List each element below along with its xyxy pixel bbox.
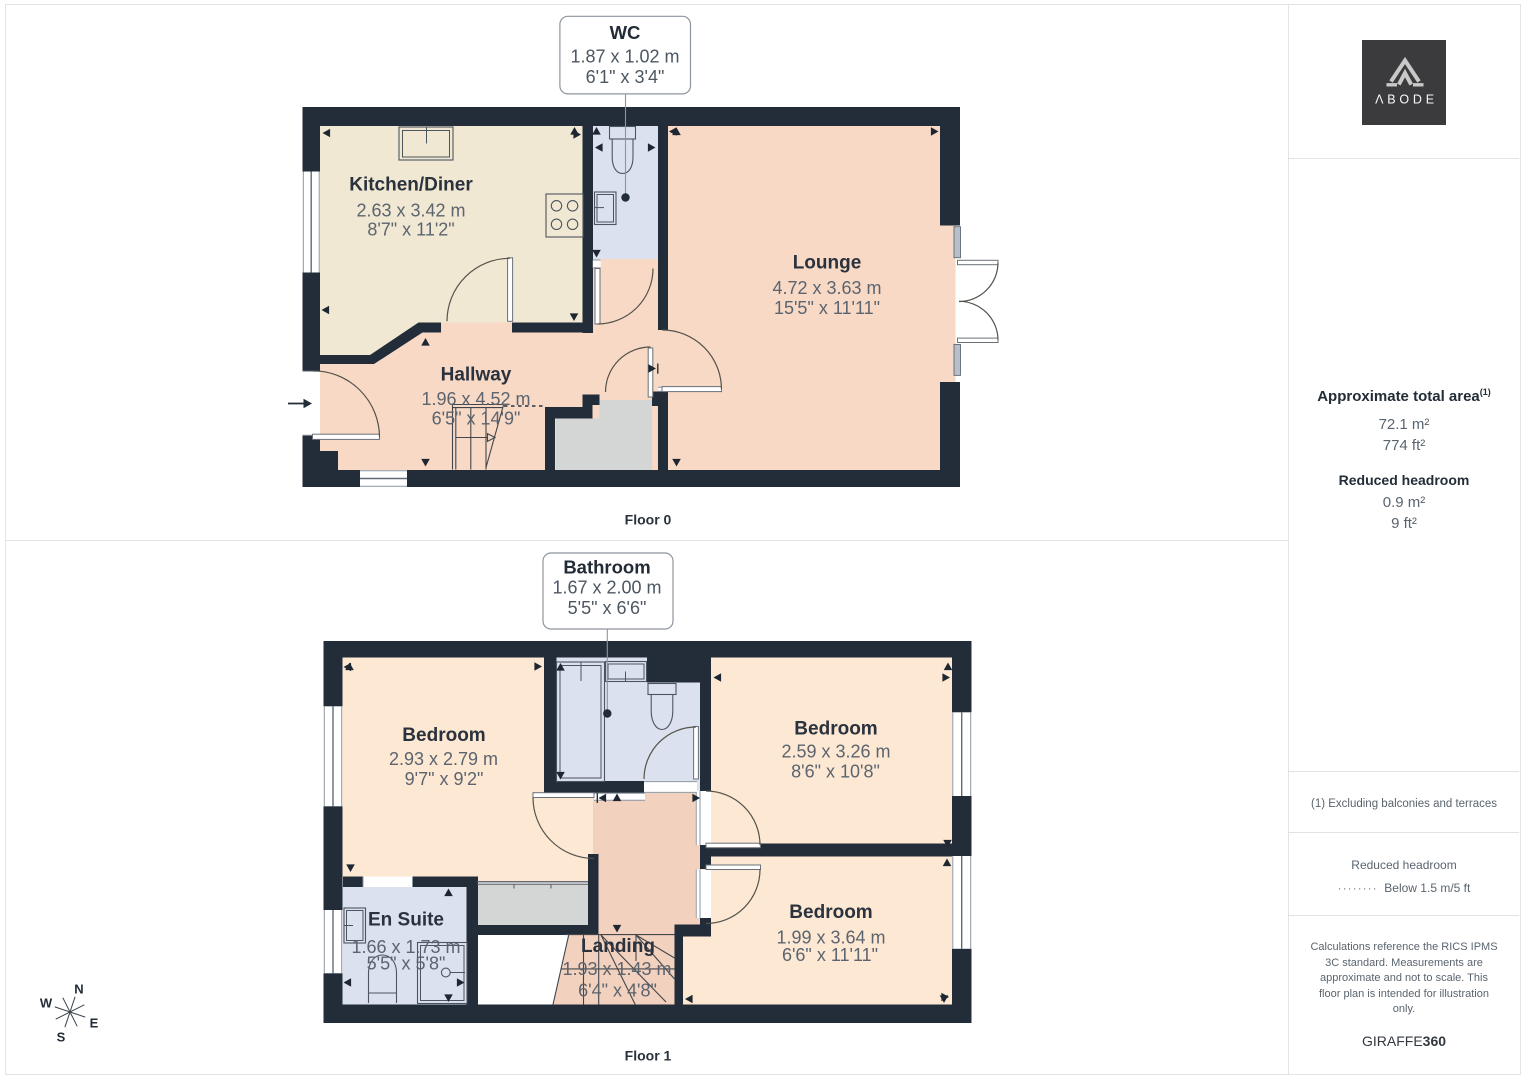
svg-text:1.87 x 1.02 m: 1.87 x 1.02 m (570, 47, 679, 67)
svg-text:Landing: Landing (581, 936, 655, 957)
svg-text:6'4" x 4'8": 6'4" x 4'8" (578, 981, 657, 1001)
svg-text:1.96 x 4.52 m: 1.96 x 4.52 m (421, 389, 530, 409)
svg-text:8'7" x 11'2": 8'7" x 11'2" (367, 220, 454, 240)
svg-text:Hallway: Hallway (441, 365, 512, 386)
svg-text:Kitchen/Diner: Kitchen/Diner (349, 175, 473, 196)
svg-text:5'5" x 6'6": 5'5" x 6'6" (568, 598, 647, 618)
svg-text:Floor 1: Floor 1 (625, 1048, 672, 1064)
svg-text:1.67 x 2.00 m: 1.67 x 2.00 m (552, 578, 661, 598)
svg-text:Bedroom: Bedroom (789, 902, 872, 923)
svg-text:E: E (90, 1016, 99, 1031)
svg-text:9'7" x 9'2": 9'7" x 9'2" (405, 769, 484, 789)
svg-text:Lounge: Lounge (793, 253, 862, 274)
svg-text:En Suite: En Suite (368, 910, 444, 931)
svg-text:Bathroom: Bathroom (563, 557, 650, 578)
svg-text:2.59 x 3.26 m: 2.59 x 3.26 m (781, 742, 890, 762)
svg-text:Floor 0: Floor 0 (625, 512, 672, 528)
svg-text:WC: WC (610, 22, 641, 43)
svg-text:N: N (74, 982, 83, 997)
svg-text:6'5" x 14'9": 6'5" x 14'9" (432, 409, 521, 429)
svg-text:ΛBODE: ΛBODE (1375, 93, 1438, 107)
svg-text:1.93 x 1.43 m: 1.93 x 1.43 m (562, 959, 671, 979)
svg-text:S: S (57, 1030, 66, 1045)
svg-text:Bedroom: Bedroom (402, 725, 485, 746)
svg-text:2.63 x 3.42 m: 2.63 x 3.42 m (356, 201, 465, 221)
svg-text:2.93 x 2.79 m: 2.93 x 2.79 m (389, 749, 498, 769)
svg-text:15'5" x 11'11": 15'5" x 11'11" (774, 298, 880, 318)
svg-text:8'6" x 10'8": 8'6" x 10'8" (791, 762, 880, 782)
svg-text:W: W (40, 996, 53, 1011)
svg-text:5'5" x 5'8": 5'5" x 5'8" (367, 954, 446, 974)
svg-text:Bedroom: Bedroom (794, 719, 877, 740)
svg-text:6'1" x 3'4": 6'1" x 3'4" (586, 67, 665, 87)
svg-text:4.72 x 3.63 m: 4.72 x 3.63 m (772, 278, 881, 298)
svg-text:6'6" x 11'11": 6'6" x 11'11" (782, 945, 878, 965)
